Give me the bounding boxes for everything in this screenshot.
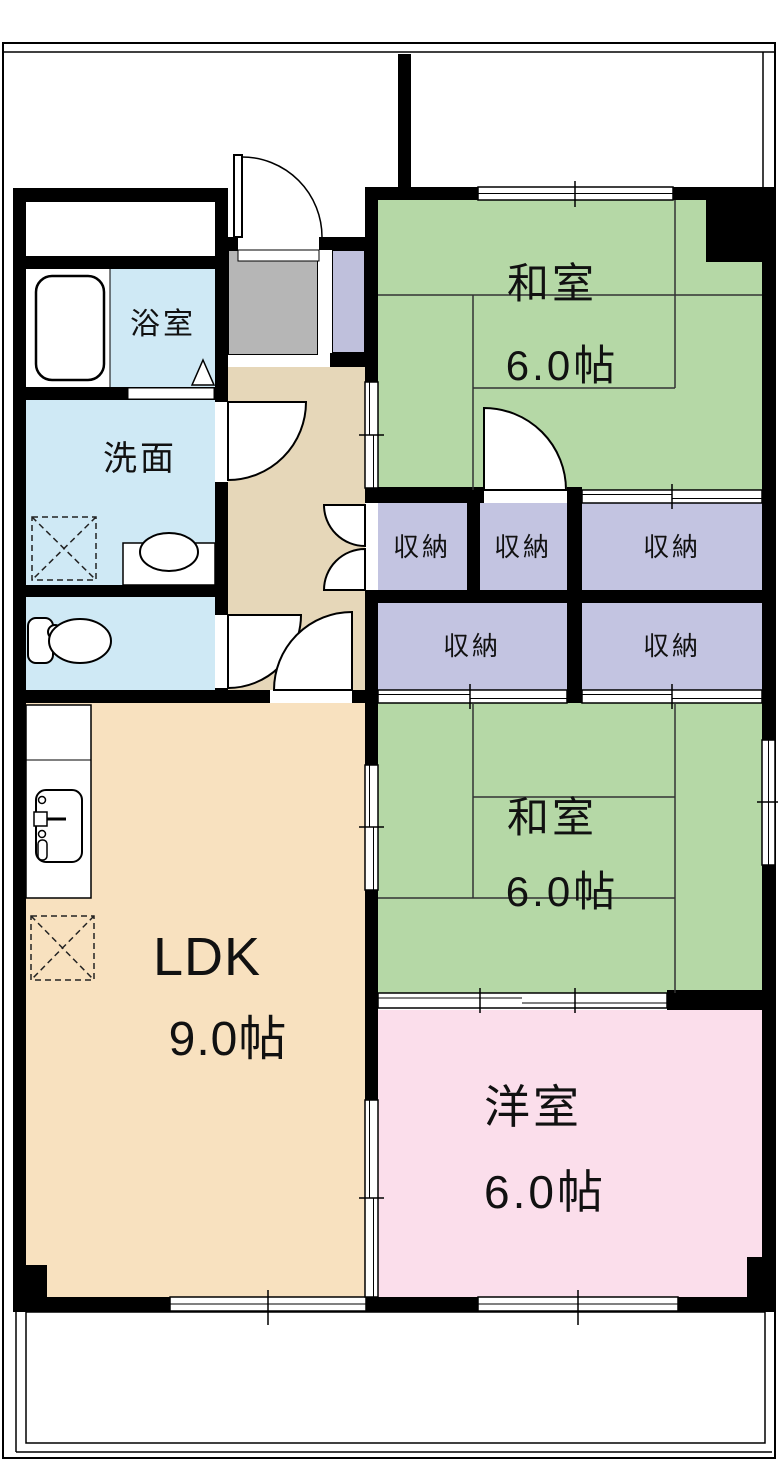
closet1-bifold-door-icon: [324, 505, 365, 546]
bath-door-indicator-icon: [192, 360, 214, 385]
yoshitsu-label: 洋室: [484, 1084, 582, 1130]
closet-3-label: 収納: [643, 534, 701, 560]
wash-basin-icon: [140, 533, 198, 571]
toilet-icon: [28, 618, 111, 663]
washroom-door-icon: [228, 402, 306, 480]
washitsu-mid-label: 和室: [507, 797, 597, 839]
closet2-door-icon: [484, 408, 566, 490]
entry-door-icon: [234, 155, 322, 261]
bathtub-icon: [36, 276, 104, 380]
windows-and-sliding-doors: [170, 181, 778, 1325]
washroom-fixtures: [32, 517, 215, 585]
closet-2-label: 収納: [494, 534, 552, 560]
washitsu-top-size: 6.0帖: [506, 345, 618, 387]
closet-4-label: 収納: [443, 633, 501, 659]
ldk-size: 9.0帖: [169, 1016, 288, 1064]
washitsu-mid-size: 6.0帖: [506, 871, 618, 913]
walls: [13, 54, 775, 1312]
closet-1-label: 収納: [393, 534, 451, 560]
washing-machine-space-icon: [32, 517, 96, 580]
closet1-bifold-door-icon: [324, 549, 365, 590]
outer-border: [3, 43, 775, 1458]
refrigerator-space-icon: [31, 916, 94, 980]
closet-5-label: 収納: [643, 633, 701, 659]
plan-linework: [0, 0, 778, 1463]
ldk-label: LDK: [153, 930, 261, 984]
yoshitsu-size: 6.0帖: [484, 1169, 606, 1215]
floor-plan: 和室 6.0帖 和室 6.0帖 洋室 6.0帖 LDK 9.0帖 浴室 洗面 収…: [0, 0, 778, 1463]
balcony: [26, 1312, 765, 1443]
kitchen-fixtures: [26, 705, 94, 980]
washroom-label: 洗面: [103, 442, 177, 476]
washitsu-top-label: 和室: [507, 263, 597, 305]
bath-label: 浴室: [130, 310, 196, 340]
